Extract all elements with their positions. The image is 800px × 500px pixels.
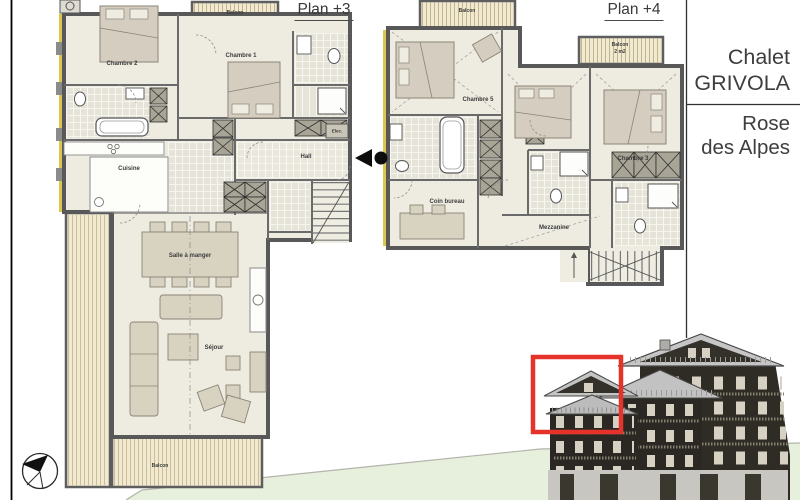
- room-label-plan3-balcon-bottom: Balcon: [152, 463, 169, 469]
- plan4-stairs: [560, 250, 660, 282]
- room-label-plan3-balcon-top: Balcon: [227, 10, 244, 16]
- entrance-marker-icon: [355, 149, 388, 167]
- room-label-chambre2: Chambre 2: [106, 61, 137, 67]
- floorplan-sheet: Plan +3 Plan +4 Balcon Chambre 2 Chambre…: [0, 0, 800, 500]
- title-block-line4: des Alpes: [701, 136, 790, 160]
- plan3-title: Plan +3: [294, 1, 353, 21]
- room-label-chambre1: Chambre 1: [225, 53, 256, 59]
- title-block-line1: Chalet: [694, 44, 790, 70]
- room-label-salle-a-manger: Salle à manger: [169, 253, 211, 259]
- plan3-drawing: [56, 0, 350, 487]
- plan3-terrace-left: [66, 213, 110, 487]
- north-compass-icon: [22, 454, 58, 490]
- plan4-balcony-top: [420, 1, 515, 28]
- title-block-residence: Rose des Alpes: [701, 112, 790, 160]
- room-label-plan4-balcon-top: Balcon: [459, 8, 476, 14]
- plan4-title: Plan +4: [604, 1, 663, 21]
- room-label-chambre3: Chambre 3: [617, 156, 648, 162]
- room-label-sejour: Séjour: [205, 345, 224, 351]
- room-label-mezzanine: Mezzanine: [539, 225, 569, 231]
- room-label-balcon-small-1: Balcon: [612, 42, 629, 48]
- drawing-layer: [0, 0, 800, 500]
- plan3-balcony-bottom: [112, 437, 262, 487]
- title-block-line3: Rose: [701, 112, 790, 136]
- title-block-line2: GRIVOLA: [694, 70, 790, 96]
- room-label-chambre5: Chambre 5: [462, 97, 493, 103]
- room-label-elec: Elec.: [332, 129, 343, 134]
- room-label-balcon-small-2: 2 m2: [614, 49, 625, 55]
- plan3-stairs: [313, 181, 349, 243]
- room-label-cuisine: Cuisine: [118, 166, 140, 172]
- plan4-drawing: [385, 1, 682, 284]
- room-label-coin-bureau: Coin bureau: [429, 199, 464, 205]
- title-block-project: Chalet GRIVOLA: [694, 44, 790, 96]
- room-label-hall: Hall: [300, 154, 311, 160]
